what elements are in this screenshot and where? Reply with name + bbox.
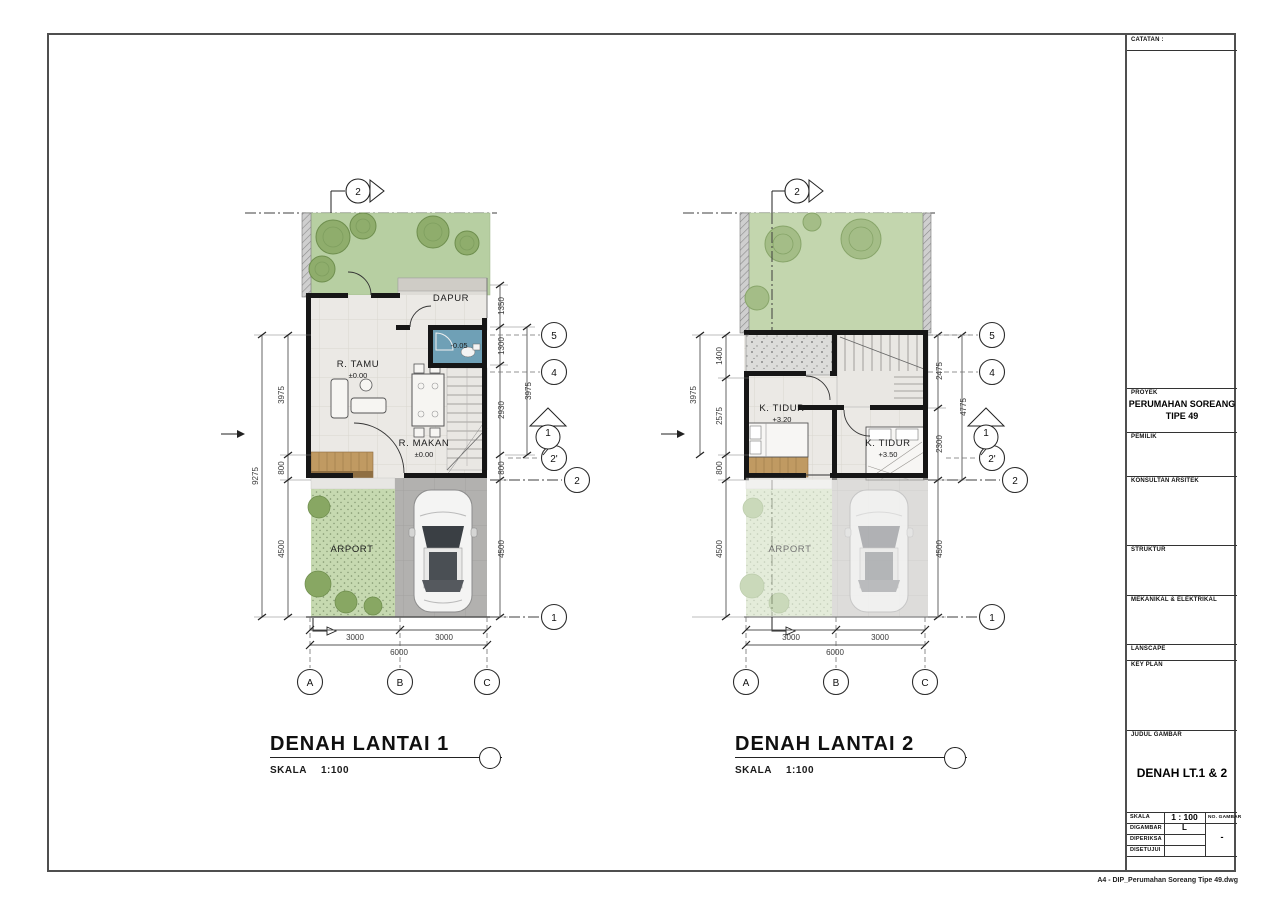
svg-text:1400: 1400 bbox=[715, 347, 724, 365]
svg-text:2: 2 bbox=[355, 187, 361, 198]
entry-arrow-left bbox=[237, 430, 245, 438]
keyplan-label: KEY PLAN bbox=[1131, 662, 1163, 668]
rmakan-label: R. MAKAN bbox=[399, 438, 450, 449]
plan2-carport-below: ARPORT bbox=[740, 478, 928, 617]
svg-text:3000: 3000 bbox=[435, 633, 453, 642]
svg-text:1: 1 bbox=[989, 613, 995, 624]
svg-text:1: 1 bbox=[983, 428, 989, 439]
svg-text:C: C bbox=[921, 678, 928, 689]
svg-text:2930: 2930 bbox=[497, 401, 506, 419]
svg-text:B: B bbox=[397, 678, 404, 689]
svg-text:B: B bbox=[833, 678, 840, 689]
svg-text:800: 800 bbox=[497, 461, 506, 475]
entry-arrow-left-2 bbox=[677, 430, 685, 438]
ktidur1-level: +3.20 bbox=[773, 415, 792, 424]
plan1-title-rule bbox=[270, 757, 502, 758]
konsultan-label: KONSULTAN ARSITEK bbox=[1131, 478, 1199, 484]
svg-text:2: 2 bbox=[1012, 476, 1018, 487]
plan2-title-rule bbox=[735, 757, 967, 758]
plan1-left-dimensions: 9275 3975 800 4500 bbox=[221, 332, 311, 620]
skala-label: SKALA bbox=[1130, 814, 1150, 820]
no-gambar-value: - bbox=[1205, 832, 1239, 842]
svg-text:4: 4 bbox=[989, 368, 995, 379]
kitchen-counter bbox=[398, 278, 487, 291]
car-top-view bbox=[409, 490, 477, 612]
digambar-label: DIGAMBAR bbox=[1130, 825, 1162, 831]
catatan-label: CATATAN : bbox=[1131, 37, 1164, 43]
svg-text:1300: 1300 bbox=[497, 337, 506, 355]
rmakan-level: ±0.00 bbox=[415, 450, 434, 459]
plan1-title-circle bbox=[479, 747, 501, 769]
drawing-title: DENAH LT.1 & 2 bbox=[1127, 766, 1237, 780]
pemilik-label: PEMILIK bbox=[1131, 434, 1157, 440]
dining-set bbox=[412, 364, 444, 437]
struktur-label: STRUKTUR bbox=[1131, 547, 1166, 553]
svg-text:800: 800 bbox=[277, 461, 286, 475]
plan1-top-section-marker: 2 bbox=[331, 179, 384, 213]
skala-value: 1 : 100 bbox=[1165, 812, 1204, 822]
plan2-scale-label: SKALA bbox=[735, 765, 772, 776]
svg-text:2575: 2575 bbox=[715, 407, 724, 425]
svg-text:2': 2' bbox=[988, 454, 996, 465]
svg-text:2: 2 bbox=[794, 187, 800, 198]
judul-gambar-label: JUDUL GAMBAR bbox=[1131, 732, 1182, 738]
svg-text:3000: 3000 bbox=[871, 633, 889, 642]
drawing-sheet: ARPORT -0.05 bbox=[0, 0, 1280, 904]
rtamu-level: ±0.00 bbox=[349, 371, 368, 380]
svg-text:2300: 2300 bbox=[935, 435, 944, 453]
bath-level-label: -0.05 bbox=[450, 341, 467, 350]
svg-text:3000: 3000 bbox=[782, 633, 800, 642]
plan2-top-section-marker: 2 bbox=[772, 179, 823, 213]
svg-text:5: 5 bbox=[551, 331, 557, 342]
plan2-right-dimensions: 2475 2300 4500 4775 bbox=[928, 332, 970, 620]
plan2-title-circle bbox=[944, 747, 966, 769]
svg-text:3000: 3000 bbox=[346, 633, 364, 642]
carport-label-faded: ARPORT bbox=[768, 544, 811, 555]
bed-1 bbox=[748, 423, 808, 457]
dim-9275: 9275 bbox=[251, 467, 260, 485]
svg-text:6000: 6000 bbox=[390, 648, 408, 657]
floor-plan-1-drawing: ARPORT -0.05 bbox=[215, 165, 607, 713]
svg-text:3975: 3975 bbox=[524, 382, 533, 400]
rtamu-label: R. TAMU bbox=[337, 359, 379, 370]
svg-text:A: A bbox=[307, 678, 314, 689]
plan1-right-dimensions: 1350 1300 2930 800 4500 3975 bbox=[490, 282, 535, 620]
plan1-title: DENAH LANTAI 1 bbox=[270, 733, 449, 756]
car-top-view-faded bbox=[845, 490, 913, 612]
svg-text:4500: 4500 bbox=[715, 540, 724, 558]
plan2-stairs bbox=[837, 333, 928, 407]
svg-text:800: 800 bbox=[715, 461, 724, 475]
svg-text:2475: 2475 bbox=[935, 362, 944, 380]
digambar-value: L bbox=[1165, 823, 1204, 832]
svg-text:1: 1 bbox=[551, 613, 557, 624]
plan1-scale-label: SKALA bbox=[270, 765, 307, 776]
entry-arrow-bottom bbox=[327, 627, 336, 635]
plan1-stairs bbox=[447, 368, 487, 475]
mekanikal-label: MEKANIKAL & ELEKTRIKAL bbox=[1131, 597, 1217, 603]
svg-text:2': 2' bbox=[550, 454, 558, 465]
floor-plan-2-drawing: K. TIDUR +3.20 K. TIDUR +3.50 bbox=[655, 165, 1047, 713]
svg-text:3975: 3975 bbox=[689, 386, 698, 404]
svg-text:6000: 6000 bbox=[826, 648, 844, 657]
title-block: CATATAN : PROYEK PERUMAHAN SOREANG TIPE … bbox=[1125, 33, 1237, 872]
plan1-bathroom: -0.05 bbox=[432, 329, 484, 365]
plan2-left-dimensions: 3975 1400 2575 800 4500 bbox=[661, 332, 749, 620]
svg-text:2: 2 bbox=[574, 476, 580, 487]
carport-label: ARPORT bbox=[330, 544, 373, 555]
plan1-grid-bubbles-right: 5 4 2' 2 1 1 bbox=[490, 323, 590, 630]
svg-text:4775: 4775 bbox=[959, 398, 968, 416]
svg-text:A: A bbox=[743, 678, 750, 689]
svg-text:C: C bbox=[483, 678, 490, 689]
disetujui-label: DISETUJUI bbox=[1130, 847, 1161, 853]
plan1-scale: SKALA1:100 bbox=[270, 765, 363, 776]
no-gambar-label: NO. GAMBAR bbox=[1208, 815, 1241, 820]
ktidur2-label: K. TIDUR bbox=[865, 438, 910, 449]
svg-text:3975: 3975 bbox=[277, 386, 286, 404]
project-name-line2: TIPE 49 bbox=[1127, 411, 1237, 421]
svg-text:4500: 4500 bbox=[497, 540, 506, 558]
plan1-bottom-dimensions: 3000 3000 6000 A B C bbox=[298, 617, 500, 695]
ktidur2-level: +3.50 bbox=[879, 450, 898, 459]
boundary-wall-hatch bbox=[302, 213, 311, 297]
proyek-label: PROYEK bbox=[1131, 390, 1158, 396]
diperiksa-label: DIPERIKSA bbox=[1130, 836, 1162, 842]
plan2-scale: SKALA1:100 bbox=[735, 765, 828, 776]
plan2-title: DENAH LANTAI 2 bbox=[735, 733, 914, 756]
dapur-label: DAPUR bbox=[433, 293, 469, 304]
ktidur1-label: K. TIDUR bbox=[759, 403, 804, 414]
plan2-scale-value: 1:100 bbox=[786, 765, 814, 776]
svg-text:1: 1 bbox=[545, 428, 551, 439]
svg-text:4500: 4500 bbox=[935, 540, 944, 558]
lanscape-label: LANSCAPE bbox=[1131, 646, 1166, 652]
svg-text:1350: 1350 bbox=[497, 297, 506, 315]
plan1-scale-value: 1:100 bbox=[321, 765, 349, 776]
svg-text:5: 5 bbox=[989, 331, 995, 342]
svg-text:4: 4 bbox=[551, 368, 557, 379]
svg-text:4500: 4500 bbox=[277, 540, 286, 558]
project-name-line1: PERUMAHAN SOREANG bbox=[1127, 399, 1237, 409]
plan1-carport-zone: ARPORT bbox=[305, 478, 490, 617]
plan2-bottom-dimensions: 3000 3000 6000 A B C bbox=[734, 617, 938, 695]
file-reference-note: A4 - DIP_Perumahan Soreang Tipe 49.dwg bbox=[940, 877, 1238, 884]
